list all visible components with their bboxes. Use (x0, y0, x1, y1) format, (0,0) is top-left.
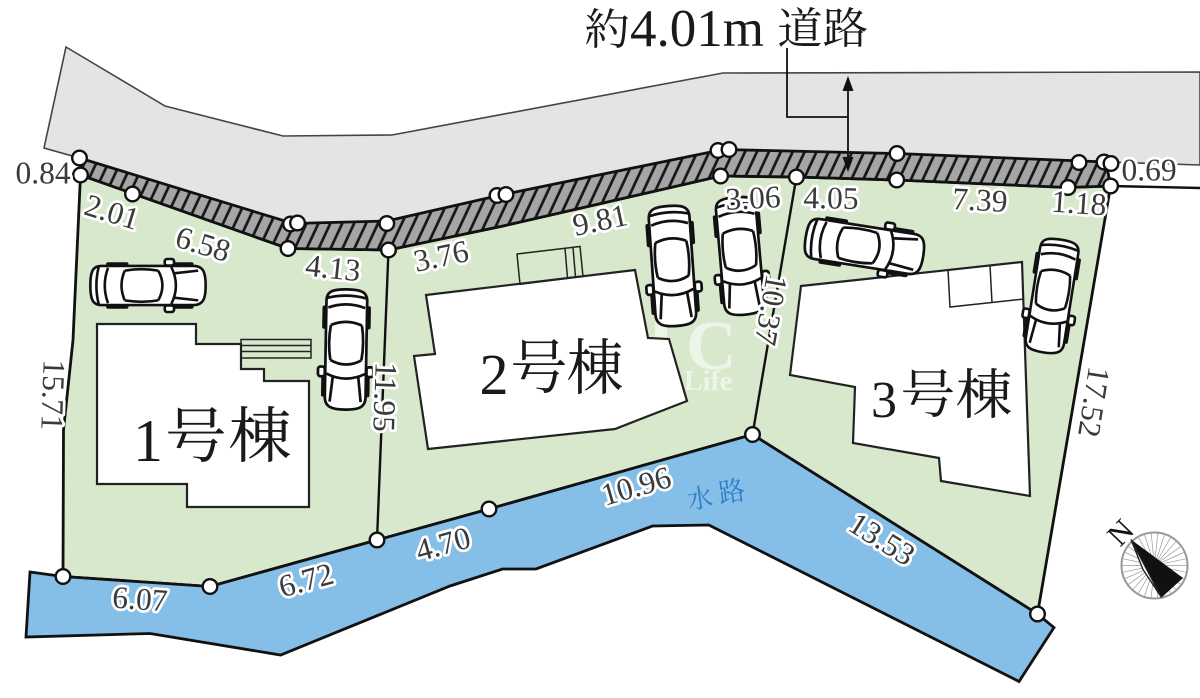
svg-text:Life: Life (684, 366, 732, 397)
svg-text:2: 2 (480, 342, 509, 407)
svg-text:4.01m: 4.01m (630, 0, 764, 58)
svg-text:1.18: 1.18 (1050, 184, 1107, 223)
svg-text:6.07: 6.07 (111, 580, 168, 619)
svg-text:15.71: 15.71 (34, 359, 71, 431)
svg-text:3.06: 3.06 (725, 179, 782, 217)
svg-text:4.05: 4.05 (803, 180, 859, 216)
svg-text:4.13: 4.13 (304, 248, 362, 289)
svg-text:0.69: 0.69 (1121, 153, 1176, 188)
svg-text:11.95: 11.95 (366, 362, 403, 433)
svg-text:0.84: 0.84 (15, 156, 70, 191)
svg-text:7.39: 7.39 (952, 181, 1009, 219)
svg-text:1: 1 (133, 408, 163, 474)
svg-text:3: 3 (871, 372, 897, 429)
